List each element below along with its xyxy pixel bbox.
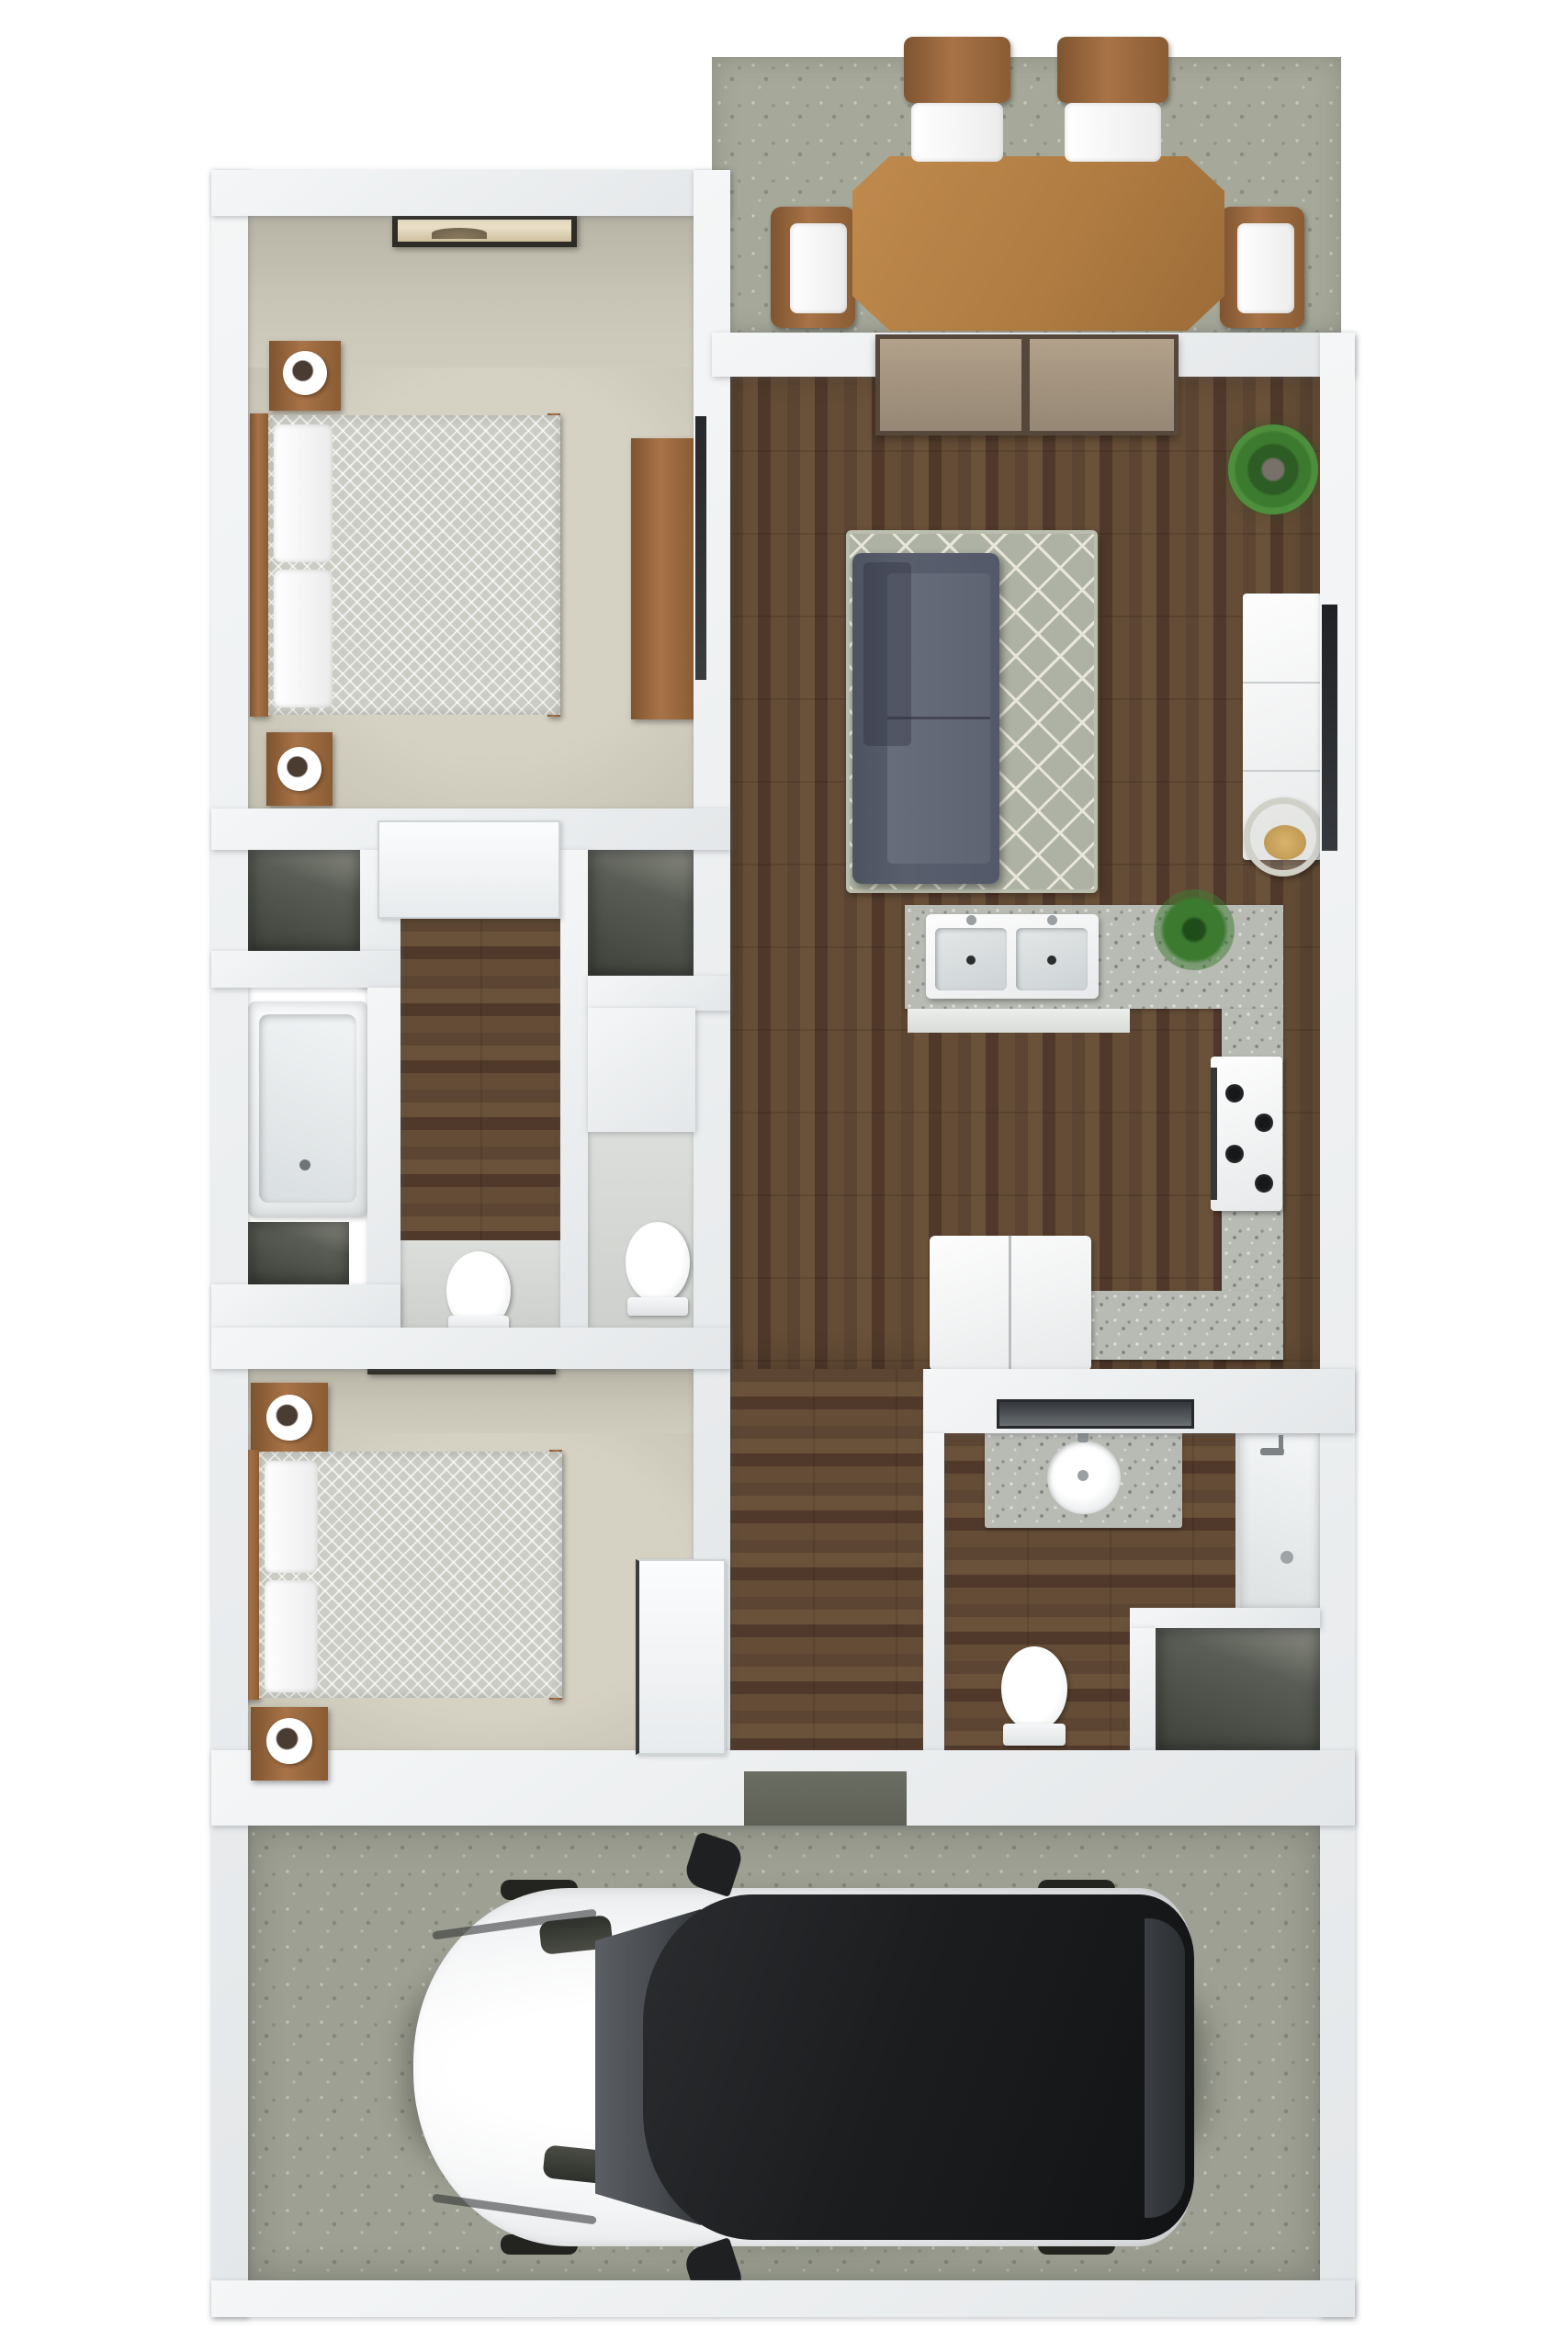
stove-oven-edge [1211,1068,1217,1200]
ensuite-closet-interior [1156,1628,1320,1750]
bathroom-mirror [997,1399,1194,1429]
sofa-chaise [863,562,911,746]
ensuite-toilet-tank [1003,1724,1066,1746]
wall-halfbath-top-block [588,1008,695,1132]
bathtub-inner [259,1014,356,1203]
car-rear-window [1145,1918,1185,2218]
bedroom1-tv [695,416,706,680]
living-tv [1322,605,1337,851]
bedroom1-art-hills [432,228,487,239]
wall-niche-bottom [211,1284,400,1328]
bedroom1-lamp-bottom [277,747,321,791]
sink-drain-right [1047,955,1056,965]
wall-outer-left [211,170,248,2317]
stove-burner-3 [1255,1114,1273,1132]
wall-tubroom-right-col [367,988,400,1328]
sink-faucet-left [966,915,976,925]
wall-center-divider [694,170,730,1750]
wall-closet-left-bottom [211,951,400,988]
kitchen-counter-plant [1154,889,1235,970]
tv-console-divider-2 [1243,770,1322,772]
patio-chair-north-left-cushion [911,103,1003,162]
bedroom1-bed-headboard [250,413,268,717]
patio-chair-north-left [904,37,1010,103]
bedroom2-lamp-bottom [266,1718,312,1764]
bedroom1-lamp-top [283,351,327,395]
wall-above-ensuite-closet [1130,1608,1320,1628]
hall-door [378,820,560,919]
vanity-sink-drain [1077,1470,1089,1481]
linen-niche-interior [248,1222,349,1284]
stove-burner-1 [1225,1084,1244,1102]
round-chair-cushion [1264,825,1306,860]
sink-faucet-right [1047,915,1057,925]
patio-chair-north-right [1057,37,1168,103]
bedroom1-pillow-1 [274,424,333,562]
bedroom2-pillow-1 [265,1461,318,1573]
shower-drain [1280,1551,1293,1564]
shower [1235,1433,1320,1610]
corridor-floor [730,1369,923,1750]
wall-ensuite-closet-left [1130,1628,1156,1750]
wall-bedroom2-top [211,1328,730,1369]
shower-head-stem [1279,1435,1283,1455]
tv-console-divider-1 [1243,682,1322,684]
stove-burner-4 [1255,1174,1273,1193]
toilet-b-tank [627,1297,688,1316]
closet-left-interior [248,850,360,951]
sink-drain-left [966,955,976,965]
bedroom2-door [636,1559,726,1755]
refrigerator-door-split [1009,1236,1011,1371]
garage-entry-mat [744,1771,907,1826]
closet-right-interior [588,850,695,976]
patio-chair-north-right-cushion [1065,103,1161,162]
wall-bath-left-col [923,1433,944,1750]
patio-chair-east-cushion [1237,223,1294,313]
bathtub-drain [299,1159,310,1170]
patio-dining-table [852,156,1224,331]
wall-bedroom1-top [211,170,730,216]
kitchen-cabinet-face [908,1009,1130,1033]
bedroom2-lamp-top [266,1395,312,1441]
bedroom2-pillow-2 [265,1580,318,1692]
stove-burner-2 [1225,1145,1244,1163]
living-potted-plant [1228,424,1318,514]
bedroom1-pillow-2 [274,570,333,707]
wall-garage-bottom [211,2280,1355,2317]
bedroom1-dresser [631,438,695,719]
wall-hall-right [560,850,588,1328]
sliding-glass-door-mullion [1021,336,1030,434]
ensuite-toilet-bowl [1001,1646,1067,1731]
car-roof [643,1894,1194,2240]
floor-plan-canvas [0,0,1568,2352]
hallway-floor [398,919,560,1240]
patio-chair-west-cushion [790,223,847,313]
kitchen-counter-bottom [1089,1291,1283,1360]
toilet-b-bowl [626,1222,690,1303]
wall-closet-right-bottom [588,976,730,1011]
